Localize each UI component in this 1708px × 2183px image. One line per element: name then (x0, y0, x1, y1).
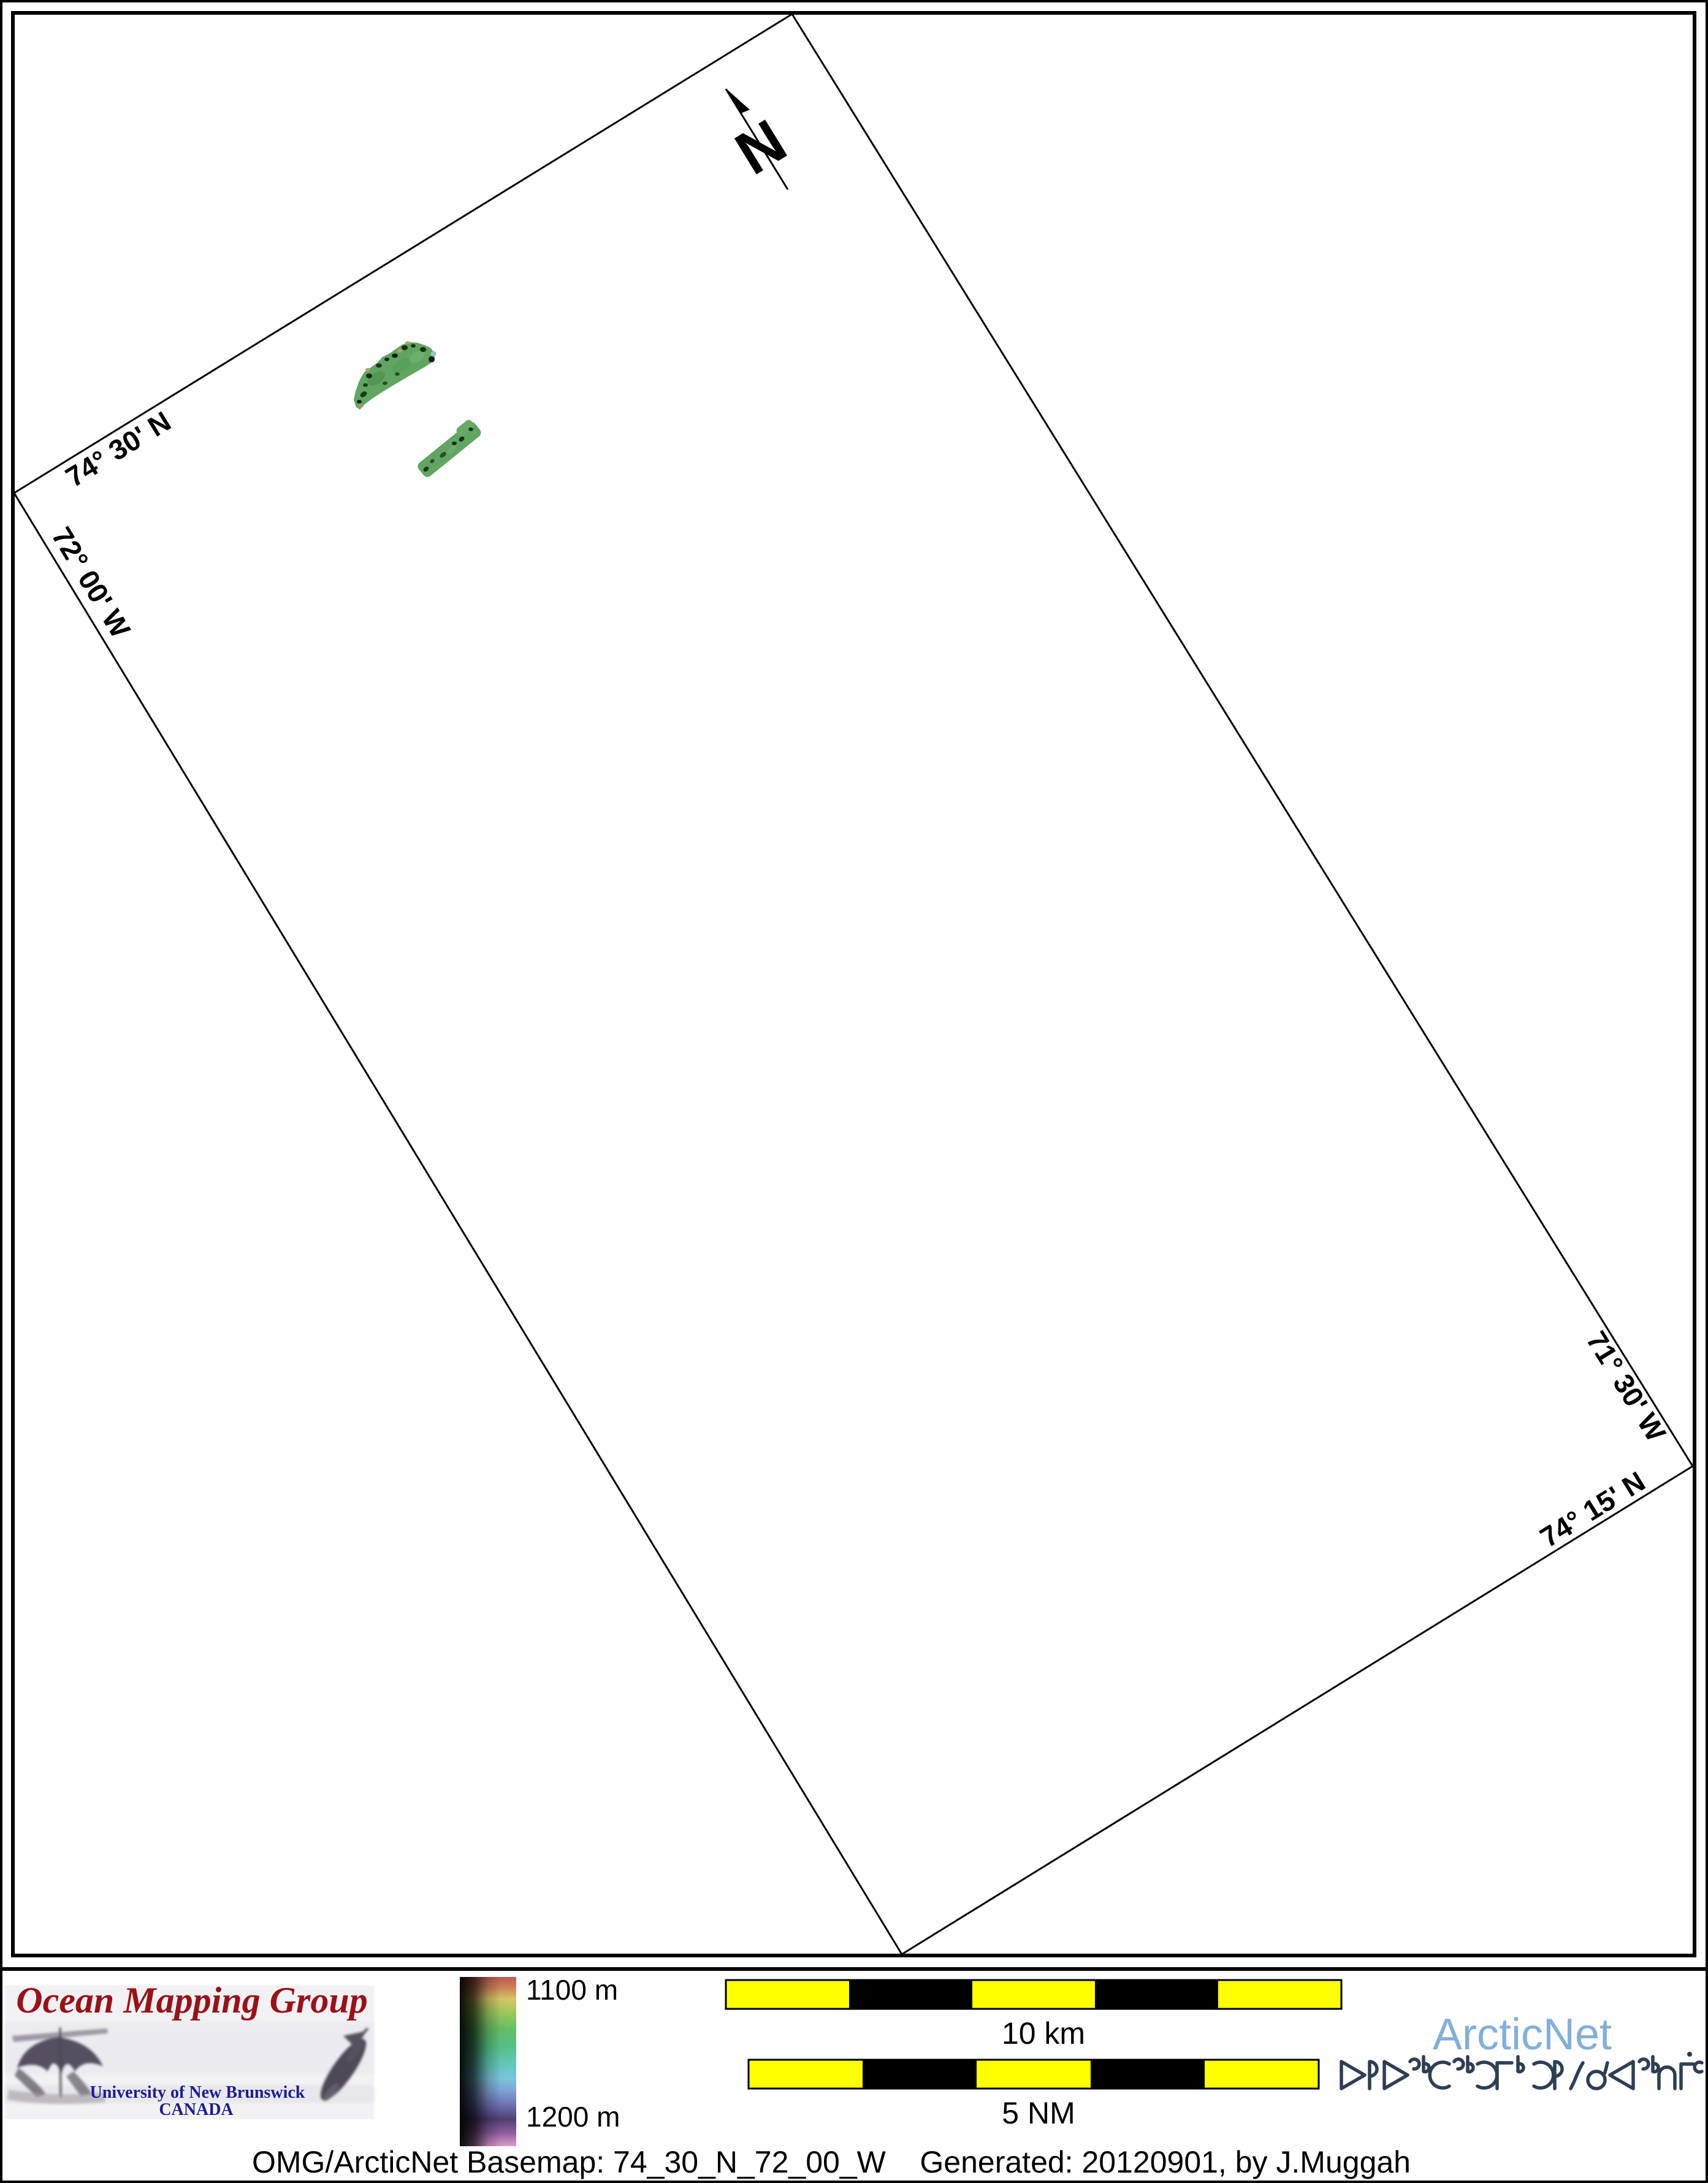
svg-text:1200 m: 1200 m (526, 2101, 620, 2133)
svg-text:CANADA: CANADA (159, 2100, 234, 2119)
svg-text:University of New Brunswick: University of New Brunswick (90, 2083, 305, 2102)
svg-text:10 km: 10 km (1002, 2016, 1085, 2051)
svg-text:1100 m: 1100 m (526, 1974, 618, 2006)
svg-text:5 NM: 5 NM (1002, 2096, 1075, 2130)
svg-text:OMG/ArcticNet Basemap: 74_30_N: OMG/ArcticNet Basemap: 74_30_N_72_00_W G… (252, 2145, 1411, 2179)
svg-text:ArcticNet: ArcticNet (1433, 2010, 1612, 2059)
svg-text:Ocean Mapping Group: Ocean Mapping Group (16, 1980, 367, 2021)
